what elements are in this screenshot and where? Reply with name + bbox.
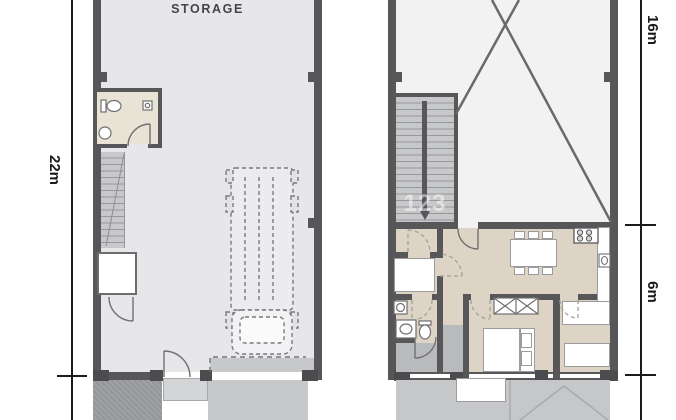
toilet-icon [419, 321, 431, 339]
boiler-icon [143, 101, 152, 110]
stair-break-line [106, 154, 124, 246]
floor-plan-canvas: 22m 16m 6m STORAGE [0, 0, 676, 420]
parking-marks [510, 380, 608, 420]
void-cross-icon [456, 0, 611, 222]
washer-icon [394, 301, 407, 314]
sink-icon [396, 320, 416, 338]
sink-icon [99, 127, 111, 139]
kitchen-sink-icon [599, 254, 610, 267]
truck-icon [226, 168, 298, 354]
door-arcs-solid [109, 124, 478, 377]
toilet-icon [101, 100, 121, 112]
lineart-overlay [0, 0, 676, 420]
garage-opening-line [210, 357, 306, 372]
door-arcs-dashed [408, 230, 578, 320]
wardrobe-icon [494, 298, 538, 314]
stove-icon [574, 228, 598, 243]
